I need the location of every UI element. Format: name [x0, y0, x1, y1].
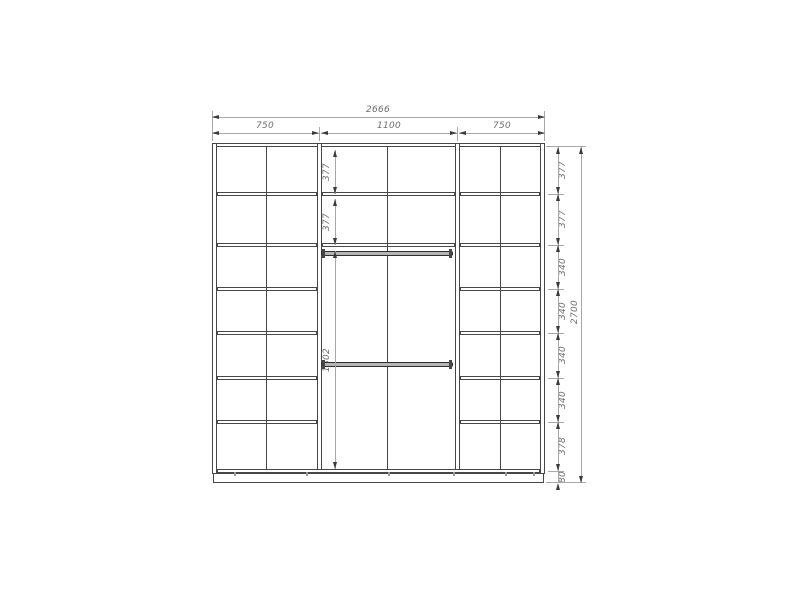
- ext-line: [319, 127, 320, 141]
- dim-line-section-left: [212, 133, 319, 134]
- rod-bracket: [449, 249, 452, 258]
- rod-bracket: [449, 360, 452, 369]
- dimension-arrow: [538, 115, 545, 119]
- divider-left-section: [266, 147, 267, 469]
- dim-label-section-right: 750: [469, 120, 535, 132]
- dimension-arrow: [333, 187, 337, 194]
- dim-label-overall-height: 2700: [569, 289, 581, 335]
- divider-right-section: [500, 147, 501, 469]
- dimension-arrow: [556, 378, 560, 385]
- dimension-arrow: [556, 464, 560, 471]
- dimension-arrow: [556, 371, 560, 378]
- rod-bracket: [322, 360, 325, 369]
- dimension-arrow: [333, 150, 337, 157]
- plinth-tick: [505, 472, 507, 476]
- top-panel: [212, 143, 545, 147]
- dimension-arrow: [556, 245, 560, 252]
- ext-line: [548, 471, 564, 472]
- dimension-arrow: [556, 289, 560, 296]
- dim-line-inner-hanging: [335, 251, 336, 469]
- dim-label-section-left: 750: [232, 120, 298, 132]
- dimension-arrow: [333, 238, 337, 245]
- dimension-arrow: [579, 147, 583, 154]
- shelf-left-section: [217, 376, 317, 380]
- dimension-arrow: [556, 483, 560, 490]
- dim-label-section-middle: 1100: [356, 120, 422, 132]
- dimension-arrow: [556, 422, 560, 429]
- dim-line-overall-height: [581, 147, 582, 483]
- dimension-arrow: [212, 115, 219, 119]
- dimension-arrow: [459, 131, 466, 135]
- hanging-rod-lower: [321, 362, 453, 367]
- divider-middle-section: [387, 147, 388, 469]
- dimension-arrow: [312, 131, 319, 135]
- plinth-tick: [306, 472, 308, 476]
- dimension-arrow: [556, 194, 560, 201]
- dim-label-overall-width: 2666: [345, 104, 411, 116]
- dimension-arrow: [556, 238, 560, 245]
- plinth-tick: [533, 472, 535, 476]
- shelf-left-section: [217, 287, 317, 291]
- plinth-tick: [388, 472, 390, 476]
- shelf-left-section: [217, 331, 317, 335]
- ext-line: [457, 127, 458, 141]
- rod-bracket: [322, 249, 325, 258]
- dimension-arrow: [333, 462, 337, 469]
- dimension-arrow: [450, 131, 457, 135]
- right-side-panel: [540, 143, 545, 474]
- dimension-arrow: [556, 333, 560, 340]
- plinth-tick: [234, 472, 236, 476]
- shelf-middle-section: [322, 192, 455, 196]
- dimension-arrow: [538, 131, 545, 135]
- shelf-middle-section: [322, 243, 455, 247]
- shelf-left-section: [217, 192, 317, 196]
- dim-line-section-right: [459, 133, 545, 134]
- dim-line-section-middle: [321, 133, 457, 134]
- wardrobe-elevation-drawing: 2666 750 1100 750 377 377 340 340 340 34…: [0, 0, 800, 600]
- dimension-arrow: [556, 187, 560, 194]
- dimension-arrow: [333, 251, 337, 258]
- dimension-arrow: [556, 326, 560, 333]
- dimension-arrow: [321, 131, 328, 135]
- hanging-rod-upper: [321, 251, 453, 256]
- dimension-arrow: [556, 415, 560, 422]
- dim-line-overall-width: [212, 117, 545, 118]
- plinth-base: [213, 473, 544, 483]
- dimension-arrow: [212, 131, 219, 135]
- dim-label-inner-1: 377: [321, 149, 333, 195]
- shelf-left-section: [217, 420, 317, 424]
- dimension-arrow: [556, 282, 560, 289]
- shelf-left-section: [217, 243, 317, 247]
- dimension-arrow: [333, 199, 337, 206]
- dimension-arrow: [579, 476, 583, 483]
- dimension-arrow: [556, 147, 560, 154]
- dim-label-inner-2: 377: [321, 199, 333, 245]
- plinth-tick: [453, 472, 455, 476]
